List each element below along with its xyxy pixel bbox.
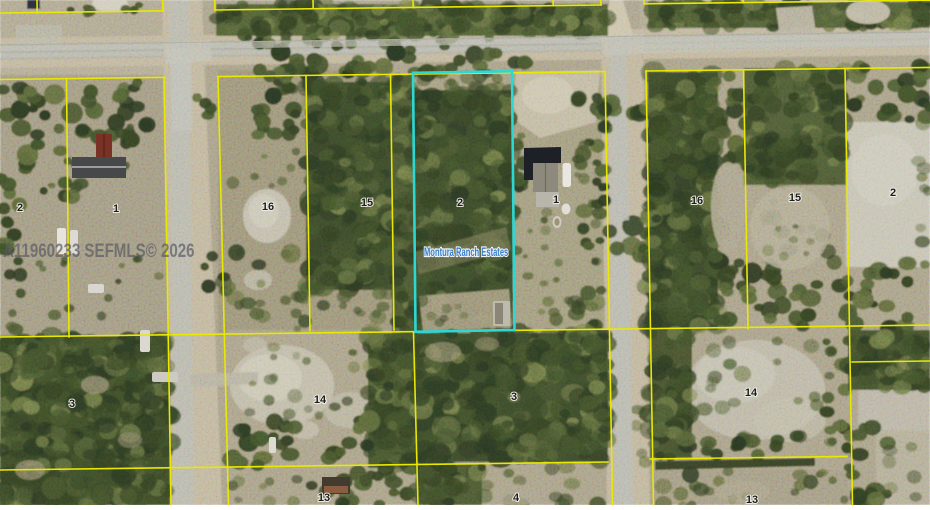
svg-text:2: 2	[457, 197, 463, 209]
svg-text:1: 1	[113, 203, 119, 215]
svg-text:A11960233 SEFMLS© 2026: A11960233 SEFMLS© 2026	[3, 239, 195, 261]
svg-text:2: 2	[17, 202, 23, 214]
svg-text:1: 1	[553, 194, 559, 206]
svg-text:15: 15	[361, 197, 373, 209]
svg-text:3: 3	[69, 398, 75, 410]
svg-text:Montura Ranch Estates: Montura Ranch Estates	[424, 247, 509, 260]
svg-text:2: 2	[890, 187, 896, 199]
svg-text:13: 13	[746, 494, 758, 505]
svg-text:13: 13	[318, 492, 330, 504]
svg-text:4: 4	[513, 492, 520, 504]
svg-text:14: 14	[745, 387, 758, 399]
svg-text:3: 3	[511, 391, 517, 403]
svg-text:16: 16	[262, 201, 274, 213]
svg-text:14: 14	[314, 394, 327, 406]
svg-text:16: 16	[691, 195, 703, 207]
svg-text:15: 15	[789, 192, 801, 204]
